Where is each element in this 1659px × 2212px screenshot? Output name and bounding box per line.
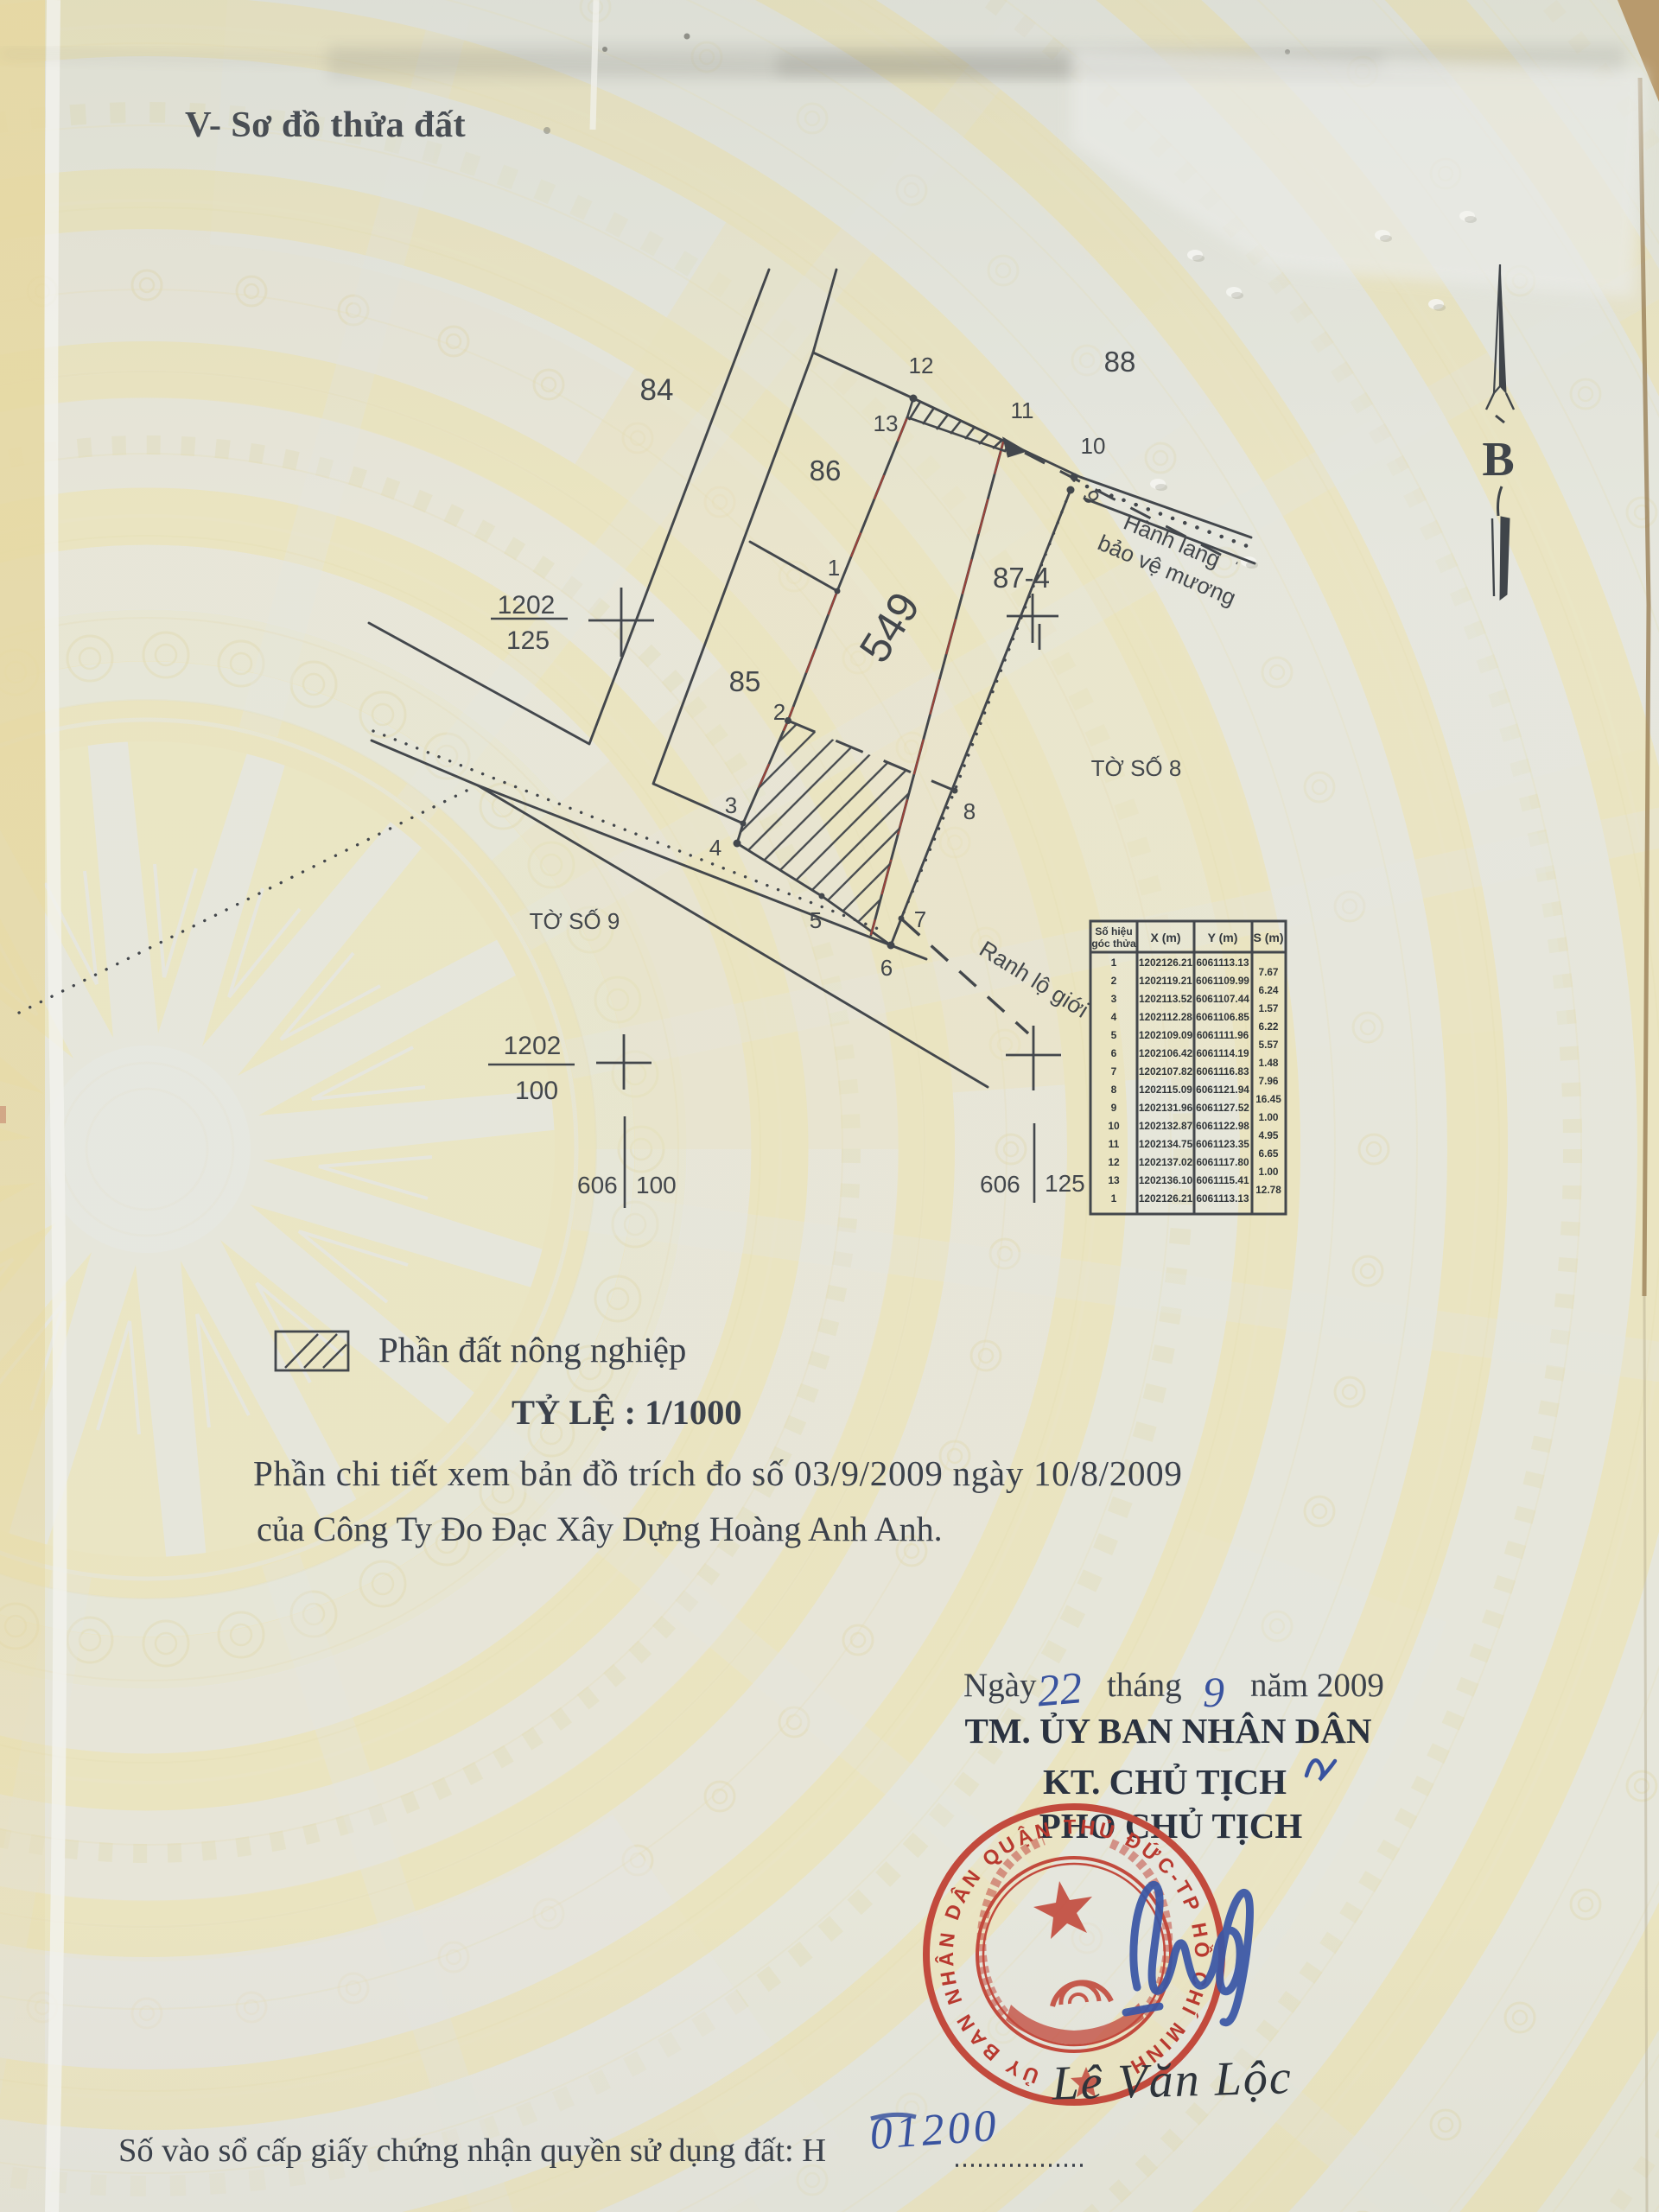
svg-text:7.67: 7.67 [1259, 966, 1279, 978]
svg-text:606: 606 [577, 1172, 618, 1198]
svg-text:87-4: 87-4 [993, 562, 1050, 594]
svg-text:100: 100 [636, 1172, 677, 1198]
svg-text:1202112.28: 1202112.28 [1139, 1011, 1192, 1023]
svg-text:01200: 01200 [868, 2101, 1001, 2159]
svg-text:TỜ SỐ 8: TỜ SỐ 8 [1091, 755, 1182, 781]
svg-text:85: 85 [729, 665, 761, 697]
svg-text:12.78: 12.78 [1255, 1184, 1281, 1196]
svg-text:5: 5 [810, 907, 822, 933]
svg-text:6061122.98: 6061122.98 [1196, 1120, 1249, 1132]
svg-text:1202131.96: 1202131.96 [1139, 1102, 1193, 1114]
svg-text:12: 12 [1108, 1156, 1120, 1168]
svg-text:TỶ LỆ : 1/1000: TỶ LỆ : 1/1000 [512, 1393, 742, 1432]
svg-text:6061115.41: 6061115.41 [1196, 1174, 1249, 1186]
svg-text:7.96: 7.96 [1259, 1075, 1279, 1087]
svg-text:TM. ỦY BAN NHÂN DÂN: TM. ỦY BAN NHÂN DÂN [964, 1711, 1371, 1751]
svg-text:1.00: 1.00 [1259, 1166, 1279, 1178]
svg-text:12: 12 [909, 353, 934, 378]
svg-text:Y (m): Y (m) [1208, 931, 1238, 944]
svg-text:3: 3 [725, 792, 737, 818]
svg-text:6061113.13: 6061113.13 [1196, 957, 1249, 969]
svg-text:84: 84 [640, 373, 674, 407]
svg-text:tháng: tháng [1107, 1667, 1182, 1704]
svg-text:5: 5 [1111, 1029, 1117, 1041]
svg-text:năm 2009: năm 2009 [1250, 1667, 1384, 1704]
svg-text:6.65: 6.65 [1259, 1147, 1279, 1160]
svg-text:X (m): X (m) [1151, 931, 1181, 944]
svg-text:11: 11 [1011, 397, 1034, 423]
svg-text:4.95: 4.95 [1259, 1129, 1279, 1141]
svg-text:Ngày: Ngày [963, 1667, 1037, 1704]
svg-text:7: 7 [1111, 1065, 1117, 1077]
svg-text:Phần đất nông nghiệp: Phần đất nông nghiệp [378, 1330, 686, 1370]
svg-text:6061114.19: 6061114.19 [1196, 1047, 1249, 1059]
svg-text:100: 100 [515, 1077, 558, 1105]
svg-text:6: 6 [880, 955, 893, 981]
svg-text:6061109.99: 6061109.99 [1196, 975, 1249, 987]
svg-text:1202126.21: 1202126.21 [1139, 1192, 1193, 1205]
svg-text:8: 8 [1111, 1084, 1117, 1096]
svg-text:Số hiệu: Số hiệu [1095, 925, 1132, 938]
svg-text:6061107.44: 6061107.44 [1196, 993, 1249, 1005]
svg-text:6061111.96: 6061111.96 [1197, 1029, 1249, 1041]
svg-text:S (m): S (m) [1254, 931, 1284, 944]
svg-text:1.00: 1.00 [1259, 1111, 1279, 1123]
svg-text:1: 1 [1111, 957, 1117, 969]
svg-text:9: 9 [1203, 1668, 1224, 1716]
svg-text:1202134.75: 1202134.75 [1139, 1138, 1193, 1150]
svg-text:1: 1 [828, 555, 840, 581]
svg-text:16.45: 16.45 [1255, 1093, 1281, 1105]
svg-text:Phần chi tiết xem bản đồ trích: Phần chi tiết xem bản đồ trích đo số 03/… [253, 1453, 1183, 1493]
svg-text:606: 606 [980, 1171, 1020, 1198]
svg-text:8: 8 [963, 798, 976, 824]
svg-text:Số vào sổ cấp giấy chứng nhận: Số vào sổ cấp giấy chứng nhận quyền sử d… [118, 2133, 826, 2169]
svg-text:1202: 1202 [498, 591, 556, 620]
svg-text:1202126.21: 1202126.21 [1139, 957, 1193, 969]
svg-text:góc thửa: góc thửa [1091, 938, 1136, 950]
svg-text:6061113.13: 6061113.13 [1196, 1192, 1249, 1205]
svg-text:6: 6 [1111, 1047, 1117, 1059]
svg-text:11: 11 [1109, 1138, 1120, 1150]
svg-text:125: 125 [1045, 1170, 1085, 1197]
svg-text:1202119.21: 1202119.21 [1139, 975, 1192, 987]
svg-text:1202109.09: 1202109.09 [1139, 1029, 1193, 1041]
svg-text:6061127.52: 6061127.52 [1196, 1102, 1249, 1114]
svg-text:6.24: 6.24 [1259, 984, 1279, 996]
svg-text:1202: 1202 [504, 1032, 562, 1060]
svg-text:1202132.87: 1202132.87 [1139, 1120, 1193, 1132]
svg-text:10: 10 [1108, 1120, 1120, 1132]
svg-text:1.57: 1.57 [1259, 1002, 1279, 1014]
svg-text:1.48: 1.48 [1259, 1057, 1279, 1069]
svg-text:125: 125 [506, 626, 550, 655]
svg-text:3: 3 [1111, 993, 1117, 1005]
svg-text:1202136.10: 1202136.10 [1139, 1174, 1193, 1186]
svg-text:B: B [1482, 433, 1514, 486]
svg-text:1202107.82: 1202107.82 [1139, 1065, 1193, 1077]
svg-text:13: 13 [874, 410, 899, 436]
svg-text:1: 1 [1111, 1192, 1117, 1205]
svg-text:1202113.52: 1202113.52 [1139, 993, 1192, 1005]
svg-text:22: 22 [1035, 1663, 1084, 1716]
svg-text:86: 86 [810, 454, 842, 486]
svg-text:1202137.02: 1202137.02 [1139, 1156, 1193, 1168]
svg-text:10: 10 [1081, 433, 1106, 459]
svg-text:Lê Văn Lộc: Lê Văn Lộc [1051, 2050, 1294, 2110]
svg-text:6061106.85: 6061106.85 [1196, 1011, 1249, 1023]
svg-text:9: 9 [1111, 1102, 1117, 1114]
svg-text:6061117.80: 6061117.80 [1196, 1156, 1249, 1168]
svg-text:4: 4 [1111, 1011, 1117, 1023]
svg-text:của Công Ty Đo Đạc Xây Dựng Ho: của Công Ty Đo Đạc Xây Dựng Hoàng Anh An… [257, 1510, 943, 1548]
svg-text:2: 2 [1111, 975, 1117, 987]
svg-text:KT. CHỦ TỊCH: KT. CHỦ TỊCH [1043, 1762, 1287, 1802]
svg-text:6061121.94: 6061121.94 [1196, 1084, 1249, 1096]
svg-text:5.57: 5.57 [1259, 1039, 1279, 1051]
svg-text:4: 4 [709, 835, 721, 861]
svg-text:TỜ SỐ 9: TỜ SỐ 9 [530, 908, 620, 934]
svg-text:2: 2 [773, 699, 785, 725]
svg-text:13: 13 [1108, 1174, 1120, 1186]
svg-text:1202115.09: 1202115.09 [1139, 1084, 1192, 1096]
svg-text:6061123.35: 6061123.35 [1196, 1138, 1249, 1150]
svg-text:6061116.83: 6061116.83 [1196, 1065, 1249, 1077]
svg-text:88: 88 [1104, 346, 1136, 378]
svg-text:7: 7 [914, 906, 926, 932]
svg-text:1202106.42: 1202106.42 [1139, 1047, 1193, 1059]
svg-text:6.22: 6.22 [1259, 1020, 1279, 1033]
svg-text:V- Sơ đồ thửa đất: V- Sơ đồ thửa đất [185, 105, 466, 145]
